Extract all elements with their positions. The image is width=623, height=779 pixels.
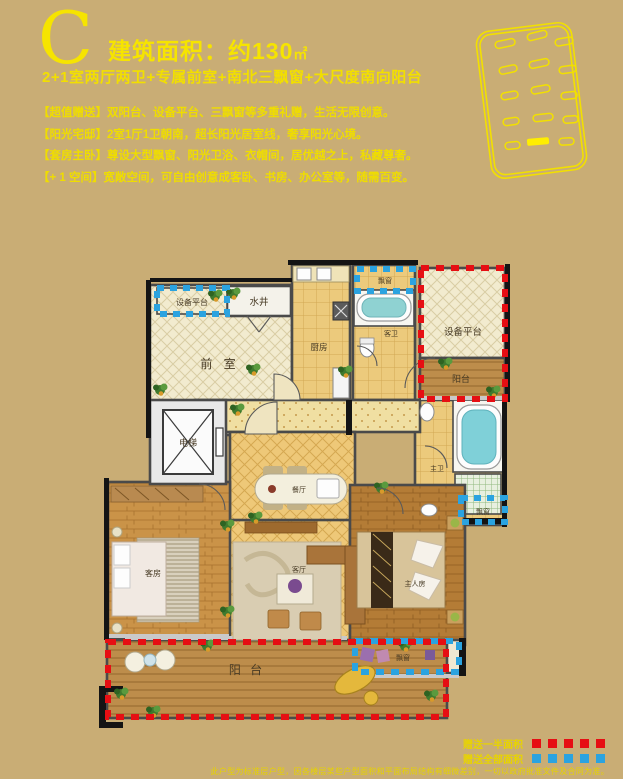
feature-item: 【超值赠送】双阳台、设备平台、三飘窗等多重礼赠，生活无限创意。 — [38, 103, 458, 125]
site-outline-inner — [479, 25, 585, 176]
label-bay-top: 飘窗 — [378, 276, 392, 285]
legend-full-area: 赠送全部面积 — [463, 751, 605, 766]
area-unit: ㎡ — [293, 46, 308, 62]
site-highlighted-building — [527, 137, 550, 146]
label-front-room: 前 室 — [200, 356, 239, 371]
legend-half-label: 赠送一半面积 — [463, 736, 523, 751]
disclaimer-text: 此户型为标准层户型，因各楼层某些户型面积和平面布局结构有细微差别，一切以政府批准… — [211, 766, 609, 777]
room-corridor — [195, 400, 420, 432]
legend-half-swatches — [532, 739, 605, 748]
label-guest-bath: 客卫 — [384, 329, 398, 338]
feature-item: 【阳光宅邸】2室1厅1卫朝南，超长阳光居室线，奢享阳光心境。 — [38, 125, 458, 147]
label-guest-room: 客房 — [145, 568, 161, 578]
label-water-well: 水井 — [249, 296, 268, 308]
label-balcony-right: 阳台 — [452, 373, 470, 384]
plan-type-letter: C — [38, 2, 93, 74]
legend-half-area: 赠送一半面积 — [463, 736, 605, 751]
label-bay-bottom: 飘窗 — [396, 653, 410, 662]
label-elevator: 电梯 — [179, 437, 197, 448]
label-balcony-south: 阳 台 — [229, 662, 265, 677]
floorplan-poster: { "colors": { "background": "#c9ad75", "… — [0, 0, 623, 779]
label-living: 客厅 — [292, 565, 306, 574]
label-equip-left: 设备平台 — [176, 297, 208, 307]
site-outline-outer — [475, 21, 588, 180]
legend-full-swatches — [532, 754, 605, 763]
area-title: 建筑面积：约130㎡ — [108, 32, 308, 66]
label-equip-right: 设备平台 — [444, 326, 482, 338]
label-master-bath: 主卫 — [430, 464, 444, 473]
feature-item: 【+ 1 空间】宽敞空间，可自由创意成客卧、书房、办公室等，随需百变。 — [38, 168, 458, 190]
area-label: 建筑面积：约130 — [108, 38, 293, 64]
site-location-sketch — [455, 8, 615, 183]
room-equip-right — [420, 268, 505, 358]
label-master-room: 主人房 — [405, 579, 426, 588]
label-kitchen: 厨房 — [310, 342, 327, 352]
feature-list: 【超值赠送】双阳台、设备平台、三飘窗等多重礼赠，生活无限创意。 【阳光宅邸】2室… — [38, 103, 458, 189]
legend-full-label: 赠送全部面积 — [463, 751, 523, 766]
feature-item: 【套房主卧】尊设大型飘窗、阳光卫浴、衣帽间，居优越之上，私藏尊奢。 — [38, 146, 458, 168]
plan-subtitle: 2+1室两厅两卫+专属前室+南北三飘窗+大尺度南向阳台 — [42, 66, 422, 87]
site-buildings — [495, 30, 579, 150]
label-bay-right: 飘窗 — [476, 507, 490, 516]
label-dining: 餐厅 — [292, 485, 306, 494]
floor-plan: 设备平台 水井 前 室 电梯 厨房 飘窗 客卫 设备平台 阳台 主卫 飘窗 餐厅… — [95, 250, 525, 730]
